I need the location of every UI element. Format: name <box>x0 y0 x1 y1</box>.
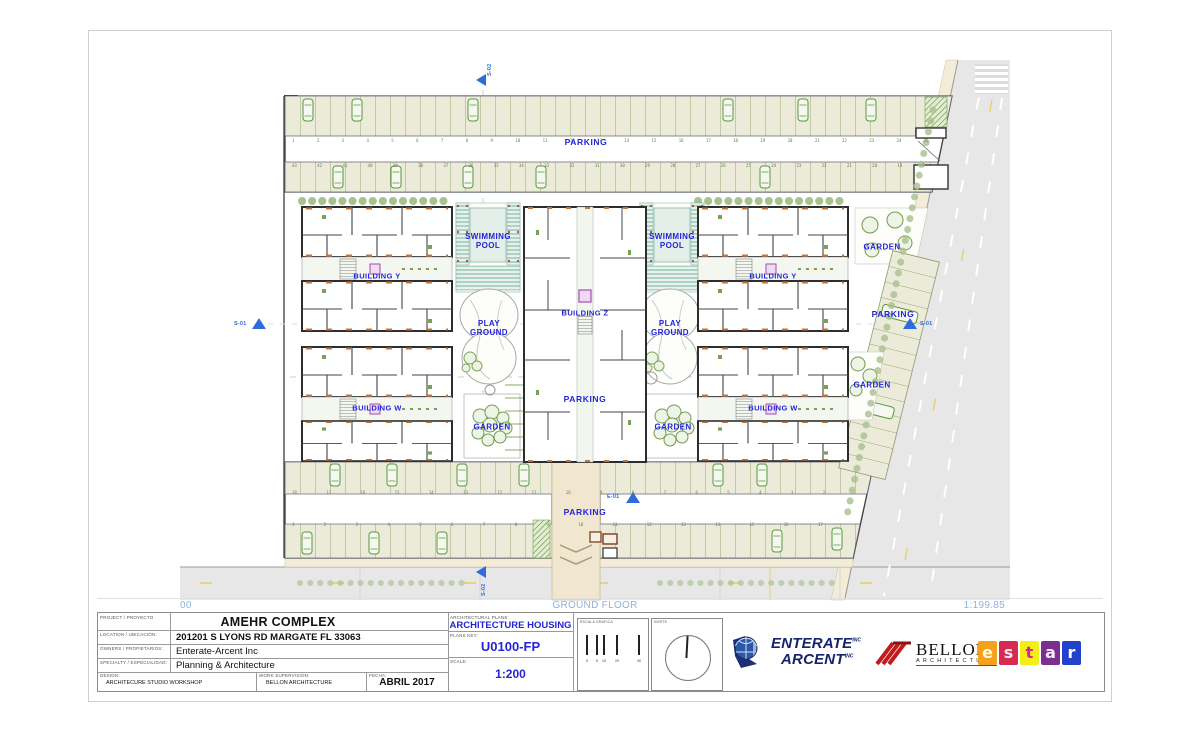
section-marker-s02-top: S-02 <box>487 64 493 76</box>
scale-bar-tick <box>638 635 640 655</box>
title-block: PROJECT / PROYECTO AMEHR COMPLEX LOCATIO… <box>97 612 1105 692</box>
tb-key-value: U0100-FP <box>448 639 573 654</box>
top-parking-area <box>285 96 952 192</box>
label-building-z: BUILDING Z <box>562 310 609 319</box>
enterate-wordmark: ENTERATE <box>771 635 852 652</box>
label-parking-right: PARKING <box>872 310 915 320</box>
label-building-y-right: BUILDING Y <box>749 273 796 282</box>
tb-line <box>98 630 448 631</box>
graphic-scale-label: ESCALA GRAFICA <box>580 620 613 624</box>
arcent-inc-suffix: INC <box>845 654 854 660</box>
label-garden-right-bottom: GARDEN <box>853 380 890 389</box>
tb-line <box>448 657 573 658</box>
tb-supervision-label: WORK SUPERVISION: <box>259 673 310 678</box>
label-building-w-left: BUILDING W <box>352 405 401 414</box>
estar-letter-tile: s <box>999 641 1018 665</box>
tb-line <box>98 658 448 659</box>
estar-letter-tile: a <box>1041 641 1060 665</box>
scale-bar-tick <box>596 635 598 655</box>
tb-specialty-value: Planning & Architecture <box>176 660 275 671</box>
section-marker-s01-right: S-01 <box>920 321 932 327</box>
tb-project-value: AMEHR COMPLEX <box>178 615 378 629</box>
strip-scale-ratio: 1:199.85 <box>964 600 1005 611</box>
stall-numbers-bottom-lower: 1 2 3 4 5 6 7 8 9 10 11 12 13 14 15 16 1… <box>292 522 852 527</box>
label-building-y-left: BUILDING Y <box>353 273 400 282</box>
scale-bar-number: 40 <box>637 659 641 663</box>
scale-bar-number: 0 <box>586 659 588 663</box>
tb-line <box>573 613 574 691</box>
tb-specialty-label: SPECIALTY / ESPECIALIDAD: <box>100 660 167 665</box>
tb-scale-value: 1:200 <box>448 667 573 681</box>
strip-floor-name: GROUND FLOOR <box>552 600 637 611</box>
bellon-roof-icon <box>873 639 913 667</box>
estar-letter-tile: e <box>978 641 997 665</box>
tb-supervision-value: BELLON ARCHITECTURE <box>266 680 332 686</box>
graphic-scale-box: ESCALA GRAFICA 0 5 10 20 40 <box>577 618 649 691</box>
drawing-sheet-page: PARKING PARKING PARKING PARKING SWIMMING… <box>0 0 1200 750</box>
scale-bar-number: 20 <box>615 659 619 663</box>
tb-owners-label: OWNERS / PROPIETARIOS: <box>100 646 163 651</box>
label-swimming-pool-left: SWIMMING POOL <box>459 232 517 250</box>
building-cluster-y-right <box>698 207 848 331</box>
tb-plans-value: ARCHITECTURE HOUSING <box>448 620 573 631</box>
label-playground-left: PLAY GROUND <box>465 319 513 337</box>
tb-key-label: PLANS KEY: <box>450 633 478 638</box>
strip-divider <box>97 598 1103 599</box>
label-parking-bottom: PARKING <box>564 508 607 518</box>
scale-bar-number: 10 <box>602 659 606 663</box>
label-garden-right-top: GARDEN <box>863 242 900 251</box>
stall-numbers-second-row: 43 42 41 40 39 38 37 36 35 34 33 32 31 3… <box>292 163 924 168</box>
scale-bar-tick <box>616 635 618 655</box>
strip-level-number: 00 <box>180 600 192 611</box>
enterate-arcent-logo: ENTERATEINC ARCENTINC <box>731 634 861 670</box>
label-building-w-right: BUILDING W <box>748 405 797 414</box>
label-garden-center-left: GARDEN <box>473 422 510 431</box>
tb-design-label: DESIGN: <box>100 673 120 678</box>
scale-bar-tick <box>603 635 605 655</box>
tb-project-label: PROJECT / PROYECTO <box>100 615 153 620</box>
arcent-wordmark: ARCENT <box>781 651 845 668</box>
tb-line <box>170 613 171 672</box>
scale-bar-tick <box>586 635 588 655</box>
tb-line <box>98 644 448 645</box>
north-arrow-box: NORTE <box>651 618 723 691</box>
scale-bar-number: 5 <box>596 659 598 663</box>
tb-line <box>448 631 573 632</box>
label-playground-right: PLAY GROUND <box>646 319 694 337</box>
tb-owners-value: Enterate-Arcent Inc <box>176 646 258 657</box>
label-parking-center: PARKING <box>564 395 607 405</box>
tb-line <box>256 672 257 691</box>
section-marker-s02-bottom: S-02 <box>481 584 487 596</box>
crosswalk <box>975 64 1008 94</box>
label-garden-center-right: GARDEN <box>654 422 691 431</box>
label-swimming-pool-right: SWIMMING POOL <box>643 232 701 250</box>
stall-numbers-bottom-upper: 18 17 16 15 14 13 12 11 10 9 8 7 6 5 4 3… <box>292 490 852 495</box>
estar-logo: e s t a r <box>978 641 1081 665</box>
north-label: NORTE <box>654 620 667 624</box>
stall-numbers-top-row: 1 2 3 4 5 6 7 8 9 10 11 12 13 14 15 16 1… <box>292 138 932 143</box>
tb-date-value: ABRIL 2017 <box>366 677 448 688</box>
building-cluster-y-left <box>302 207 452 331</box>
section-marker-s01-left: S-01 <box>234 321 246 327</box>
tb-design-value: ARCHITECURE STUDIO WORKSHOP <box>106 680 202 686</box>
building-z <box>524 207 646 462</box>
estar-letter-tile: r <box>1062 641 1081 665</box>
north-circle <box>665 635 711 681</box>
tb-location-label: LOCATION / UBICACIÓN: <box>100 632 157 637</box>
globe-icon <box>731 634 767 670</box>
enterate-inc-suffix: INC <box>852 638 861 644</box>
tb-location-value: 201201 S LYONS RD MARGATE FL 33063 <box>176 632 361 643</box>
estar-letter-tile: t <box>1020 641 1039 665</box>
tb-scale-label: SCALE: <box>450 659 467 664</box>
